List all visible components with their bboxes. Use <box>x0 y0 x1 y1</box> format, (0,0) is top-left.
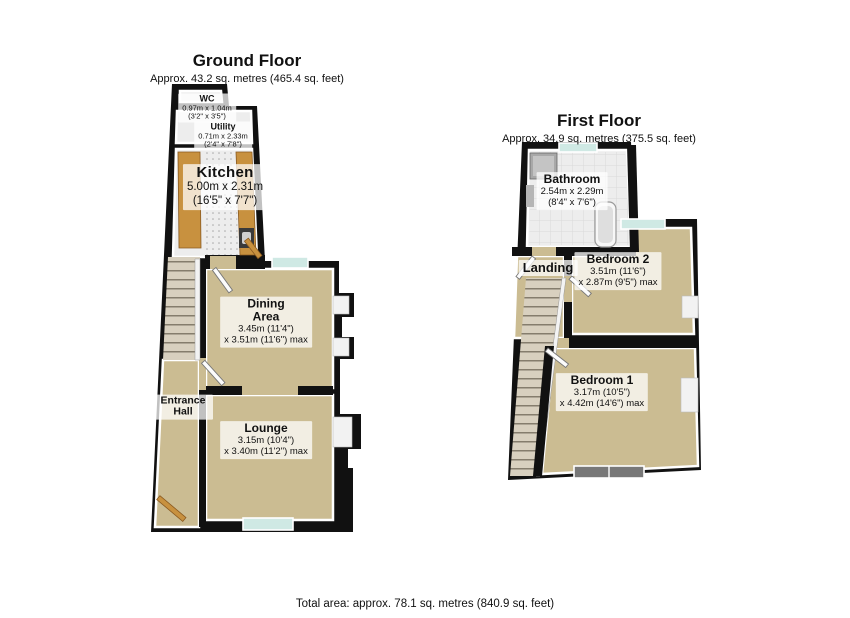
first-floor-subtitle: Approx. 34.9 sq. metres (375.5 sq. feet) <box>502 133 696 145</box>
bedroom2-alcove <box>682 296 698 318</box>
dining-lounge-opening <box>242 386 298 395</box>
bedroom1-chimney-alcove <box>681 378 698 412</box>
lounge-label: Lounge 3.15m (10'4") x 3.40m (11'2") max <box>220 421 312 459</box>
first-floor-title-text: First Floor <box>502 112 696 131</box>
bathtub-basin <box>598 206 613 243</box>
wc-label: WC 0.97m x 1.04m (3'2" x 3'5") <box>178 94 236 123</box>
total-area-text: Total area: approx. 78.1 sq. metres (840… <box>0 598 850 610</box>
floorplan-svg <box>0 0 850 618</box>
lounge-bay-window <box>243 518 293 530</box>
dining-lounge-wall-left <box>206 386 242 395</box>
bedroom1-label: Bedroom 1 3.17m (10'5") x 4.42m (14'6") … <box>556 373 648 411</box>
lounge-bay-alcove <box>333 417 352 447</box>
floorplan-page: Ground Floor Approx. 43.2 sq. metres (46… <box>0 0 850 618</box>
bathroom-label: Bathroom 2.54m x 2.29m (8'4" x 7'6") <box>537 172 608 210</box>
utility-label: Utility 0.71m x 2.33m (2'4" x 7'8") <box>194 122 252 151</box>
bathroom-doorway <box>532 247 556 256</box>
first-floor-title: First Floor Approx. 34.9 sq. metres (375… <box>502 112 696 145</box>
bathroom-radiator <box>526 185 534 207</box>
ground-floor-subtitle: Approx. 43.2 sq. metres (465.4 sq. feet) <box>150 73 344 85</box>
dining-alcove-lower <box>333 338 349 356</box>
kitchen-label: Kitchen 5.00m x 2.31m (16'5" x 7'7") <box>183 164 267 210</box>
dining-lounge-wall-right <box>298 386 333 395</box>
dining-area-label: Dining Area 3.45m (11'4") x 3.51m (11'6"… <box>220 297 312 348</box>
entrance-hall-label: Entrance Hall <box>153 395 213 420</box>
ground-stairs <box>163 257 200 360</box>
ground-floor-title: Ground Floor Approx. 43.2 sq. metres (46… <box>150 52 344 85</box>
ground-floor-title-text: Ground Floor <box>150 52 344 71</box>
ground-stairs-banister <box>195 259 200 360</box>
landing-label: Landing <box>519 260 578 276</box>
dining-alcove-upper <box>333 296 349 314</box>
bedroom2-window <box>621 219 665 229</box>
kitchen-dining-doorway <box>210 256 236 269</box>
bedroom2-label: Bedroom 2 3.51m (11'6") x 2.87m (9'5") m… <box>574 252 661 290</box>
dining-window <box>272 257 308 268</box>
